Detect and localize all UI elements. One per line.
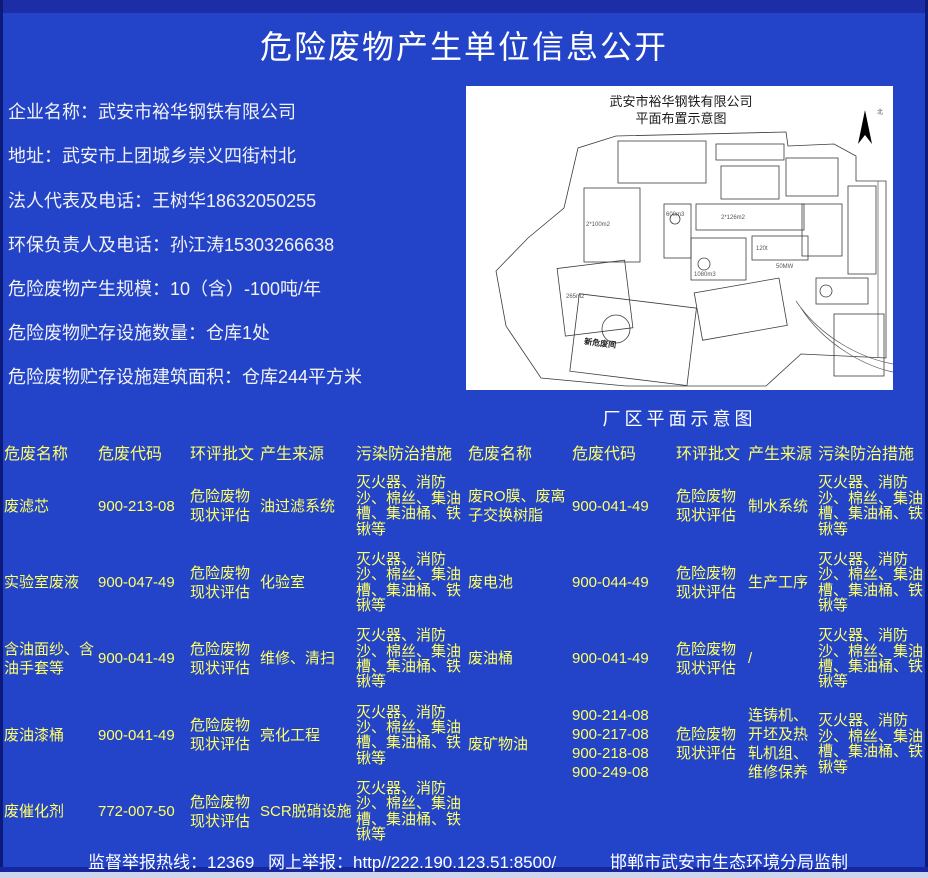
map-road: [801, 308, 893, 372]
table-cell: 灭火器、消防沙、棉丝、集油槽、集油桶、铁锹等: [354, 697, 464, 773]
info-company-name: 企业名称：武安市裕华钢铁有限公司: [8, 98, 296, 124]
info-storage-count: 危险废物贮存设施数量：仓库1处: [8, 319, 270, 345]
table-header-cell: 危废名称: [466, 440, 570, 468]
table-cell: 化验室: [258, 544, 354, 620]
map-label-hazwaste-room: 新危废间: [584, 336, 617, 350]
map-label: 265m2: [566, 294, 585, 300]
table-header-cell: 危废名称: [2, 440, 96, 468]
table-header-cell: 污染防治措施: [816, 440, 926, 468]
table-cell: 含油面纱、含油手套等: [2, 621, 96, 697]
table-cell: 实验室废液: [2, 544, 96, 620]
table-header-cell: 产生来源: [746, 440, 816, 468]
table-header-cell: 危废代码: [570, 440, 674, 468]
table-cell: 危险废物现状评估: [188, 774, 258, 850]
table-cell: 危险废物现状评估: [674, 468, 746, 544]
info-address: 地址：武安市上团城乡崇义四街村北: [8, 142, 296, 168]
map-label: 120t: [756, 246, 768, 252]
table-cell: 亮化工程: [258, 697, 354, 773]
table-header-cell: 污染防治措施: [354, 440, 464, 468]
table-cell: 900-213-08: [96, 468, 188, 544]
map-caption: 厂区平面示意图: [466, 405, 893, 431]
map-building: [816, 278, 868, 304]
plant-map-drawing: 武安市裕华钢铁有限公司 平面布置示意图 北: [466, 86, 893, 390]
table-cell: 维修、清扫: [258, 621, 354, 697]
map-label: 2*126m2: [721, 215, 746, 221]
map-label: 2*100m2: [586, 222, 611, 228]
map-building: [848, 186, 876, 274]
table-header-cell: 产生来源: [258, 440, 354, 468]
info-waste-scale: 危险废物产生规模：10（含）-100吨/年: [8, 275, 321, 301]
footer-producer: 邯郸市武安市生态环境分局监制: [610, 848, 848, 873]
table-cell: 危险废物现状评估: [674, 544, 746, 620]
map-tank: [820, 285, 832, 297]
table-cell: 900-214-08 900-217-08 900-218-08 900-249…: [570, 697, 674, 791]
table-cell: 900-044-49: [570, 544, 674, 620]
table-cell: 灭火器、消防沙、棉丝、集油槽、集油桶、铁锹等: [354, 544, 464, 620]
map-building: [696, 204, 804, 230]
map-title-line1: 武安市裕华钢铁有限公司: [609, 94, 752, 109]
table-cell: 危险废物现状评估: [674, 697, 746, 791]
table-cell: 废RO膜、废离子交换树脂: [466, 468, 570, 544]
table-cell: 危险废物现状评估: [188, 544, 258, 620]
table-cell: 废油桶: [466, 621, 570, 697]
table-cell: 灭火器、消防沙、棉丝、集油槽、集油桶、铁锹等: [354, 774, 464, 850]
table-cell: 灭火器、消防沙、棉丝、集油槽、集油桶、铁锹等: [816, 697, 926, 791]
plant-map: 武安市裕华钢铁有限公司 平面布置示意图 北: [466, 86, 893, 390]
table-cell: 危险废物现状评估: [188, 697, 258, 773]
table-cell: 废电池: [466, 544, 570, 620]
table-cell: 900-041-49: [96, 697, 188, 773]
table-cell: 废滤芯: [2, 468, 96, 544]
table-cell: 危险废物现状评估: [188, 468, 258, 544]
footer-bar: 监督举报热线：12369 网上举报：http//222.190.123.51:8…: [0, 848, 928, 870]
map-building: [694, 278, 787, 340]
table-cell: 生产工序: [746, 544, 816, 620]
north-label: 北: [877, 108, 883, 116]
table-cell: SCR脱硝设施: [258, 774, 354, 850]
table-header-cell: 环评批文: [674, 440, 746, 468]
table-cell: 灭火器、消防沙、棉丝、集油槽、集油桶、铁锹等: [816, 468, 926, 544]
info-storage-area: 危险废物贮存设施建筑面积：仓库244平方米: [8, 363, 362, 389]
table-cell: 900-041-49: [570, 621, 674, 697]
table-cell: 危险废物现状评估: [674, 621, 746, 697]
table-cell: 772-007-50: [96, 774, 188, 850]
table-cell: 灭火器、消防沙、棉丝、集油槽、集油桶、铁锹等: [354, 468, 464, 544]
table-cell: 灭火器、消防沙、棉丝、集油槽、集油桶、铁锹等: [816, 621, 926, 697]
table-cell: 油过滤系统: [258, 468, 354, 544]
table-cell: 制水系统: [746, 468, 816, 544]
info-legal-rep: 法人代表及电话：王树华18632050255: [8, 187, 316, 213]
map-building: [834, 314, 884, 376]
footer-online-report: 网上举报：http//222.190.123.51:8500/: [268, 848, 556, 873]
map-building: [786, 158, 838, 196]
table-header-cell: 环评批文: [188, 440, 258, 468]
table-cell: 废矿物油: [466, 697, 570, 791]
table-cell: /: [746, 621, 816, 697]
table-header-cell: 危废代码: [96, 440, 188, 468]
map-building: [618, 141, 706, 183]
page-title: 危险废物产生单位信息公开: [0, 22, 928, 68]
table-cell: 900-041-49: [96, 621, 188, 697]
table-cell: 危险废物现状评估: [188, 621, 258, 697]
map-building: [716, 144, 784, 160]
north-arrow-icon: 北: [858, 108, 883, 144]
map-tank: [698, 258, 710, 270]
map-building: [721, 166, 779, 199]
table-cell: 900-041-49: [570, 468, 674, 544]
frame-top: [0, 0, 928, 13]
info-env-officer: 环保负责人及电话：孙江涛15303266638: [8, 231, 334, 257]
map-label: 50MW: [776, 264, 794, 270]
table-cell: 灭火器、消防沙、棉丝、集油槽、集油桶、铁锹等: [354, 621, 464, 697]
waste-table-left: 危废名称 危废代码 环评批文 产生来源 污染防治措施 废滤芯 900-213-0…: [2, 440, 464, 850]
map-label: 1080m3: [694, 272, 716, 278]
table-cell: 连铸机、开坯及热轧机组、维修保养: [746, 697, 816, 791]
table-cell: 900-047-49: [96, 544, 188, 620]
map-title-line2: 平面布置示意图: [635, 111, 726, 126]
map-label: 600m3: [666, 212, 685, 218]
waste-table-right: 危废名称 危废代码 环评批文 产生来源 污染防治措施 废RO膜、废离子交换树脂 …: [466, 440, 926, 791]
footer-hotline: 监督举报热线：12369: [88, 848, 254, 873]
table-cell: 灭火器、消防沙、棉丝、集油槽、集油桶、铁锹等: [816, 544, 926, 620]
table-cell: 废油漆桶: [2, 697, 96, 773]
table-cell: 废催化剂: [2, 774, 96, 850]
